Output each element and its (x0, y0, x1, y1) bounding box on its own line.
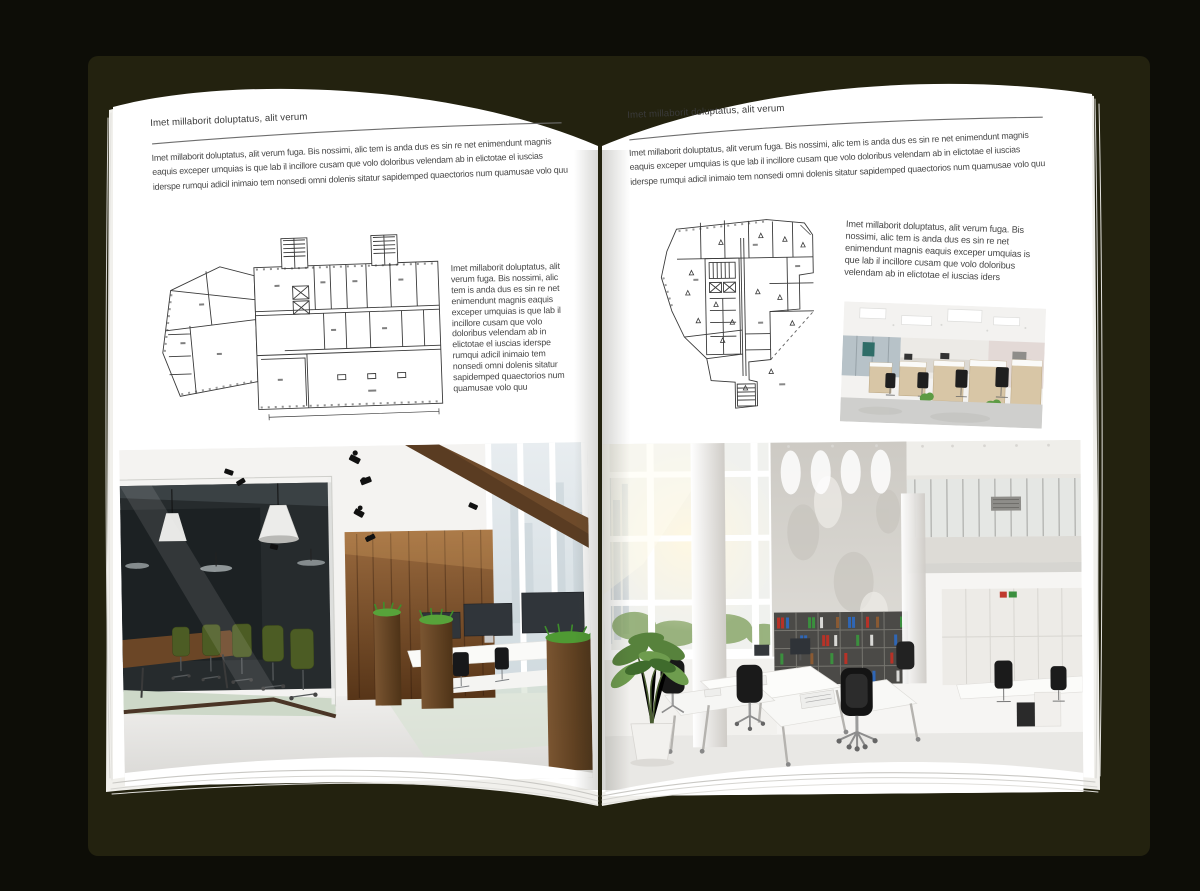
right-large-office-photo (602, 440, 1083, 796)
right-side-paragraph: Imet millaborit doluptatus, alit verum f… (844, 219, 1032, 285)
right-small-office-photo (840, 301, 1046, 428)
left-floor-plan (153, 225, 454, 431)
mezzanine (906, 440, 1081, 574)
left-side-paragraph: Imet millaborit doluptatus, alit verum f… (451, 261, 570, 394)
book-mockup-spread: Imet millaborit doluptatus, alit verum I… (0, 0, 1200, 891)
right-floor-plan (648, 212, 839, 417)
left-office-photo (119, 442, 593, 786)
